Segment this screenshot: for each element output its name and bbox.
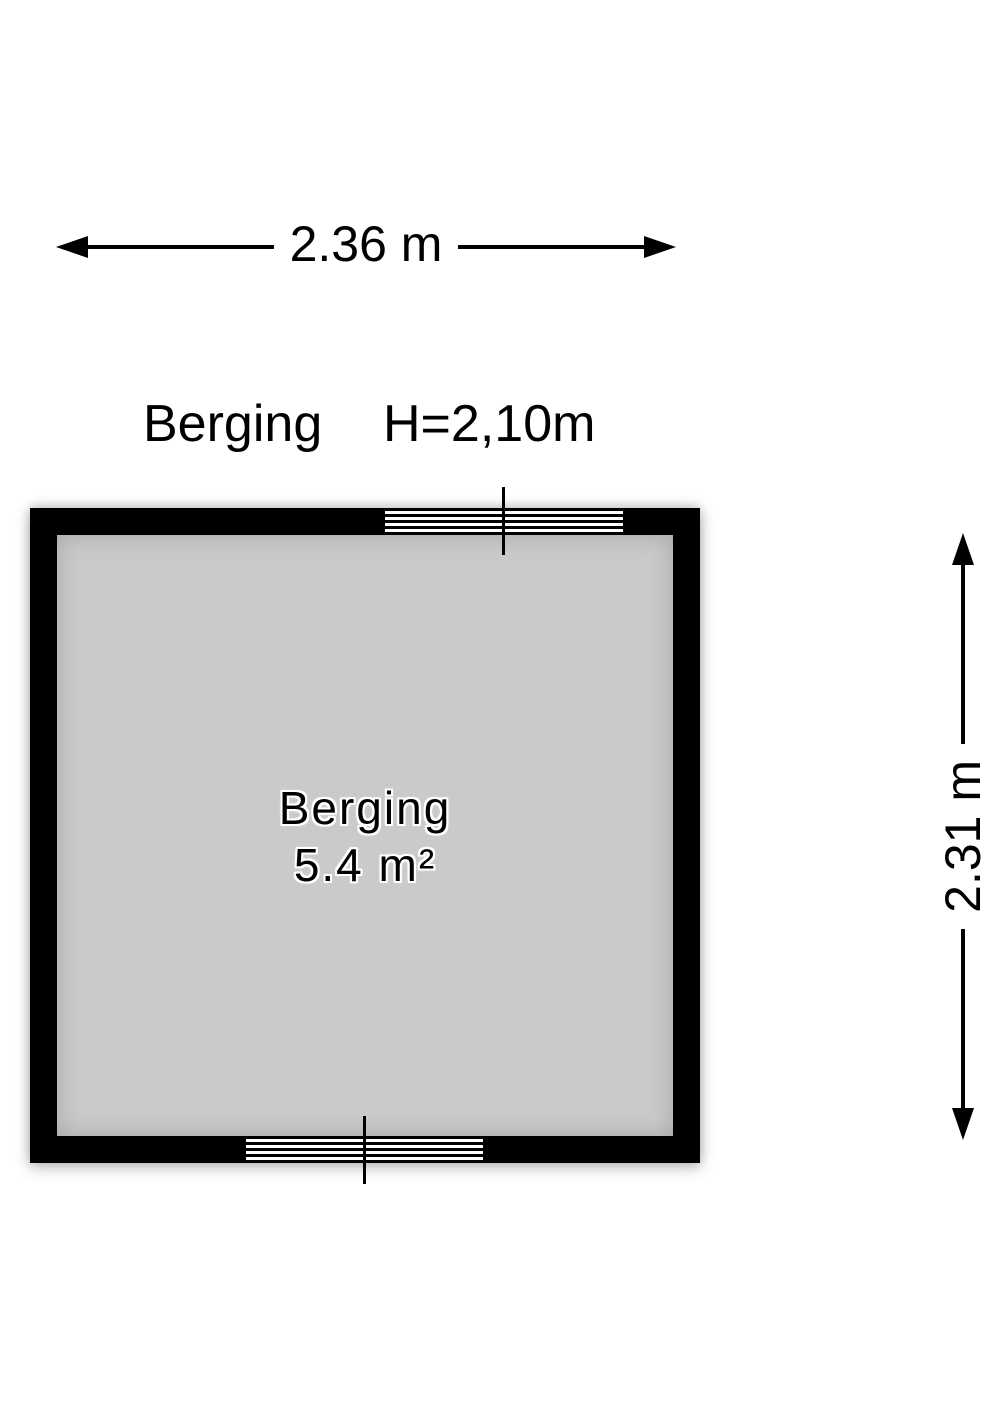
height-dimension: 2.31 m [941,533,985,1140]
arrowhead-left-icon [56,236,88,258]
arrowhead-up-icon [952,533,974,565]
room-label: Berging 5.4 m² [30,780,700,894]
height-dimension-label: 2.31 m [938,744,988,929]
room-walls: Berging 5.4 m² [30,508,700,1163]
width-dimension-line-left [88,245,274,249]
floor-plan-canvas: 2.36 m Berging H=2,10m Berging 5.4 m² 2.… [0,0,1000,1414]
width-dimension-line-right [458,245,644,249]
width-dimension-label: 2.36 m [274,219,459,275]
arrowhead-down-icon [952,1108,974,1140]
room-name-label: Berging [30,780,700,837]
bottom-window-tick [363,1116,366,1184]
width-dimension: 2.36 m [56,217,676,277]
height-dimension-line-top [961,565,965,744]
ceiling-height-heading: H=2,10m [383,398,595,450]
height-dimension-line-bottom [961,929,965,1108]
room-name-heading: Berging [143,398,322,450]
top-window-tick [502,487,505,555]
arrowhead-right-icon [644,236,676,258]
room-area-label: 5.4 m² [30,837,700,894]
